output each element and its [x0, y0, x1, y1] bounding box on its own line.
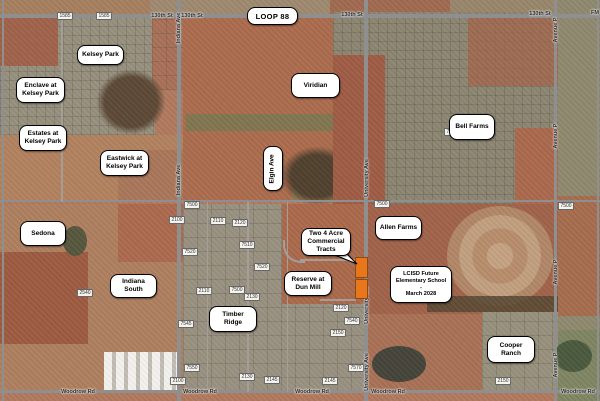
road-shield: 7540: [344, 317, 360, 325]
road-east-edge-road: [597, 0, 599, 401]
road-avenue-p: [554, 0, 557, 401]
road-shield: 2100: [169, 216, 185, 224]
tract-highlight: [355, 279, 368, 299]
road-shield: 7550: [184, 364, 200, 372]
terrain-playa-lake: [95, 68, 167, 136]
aerial-map: 1585158570507500750075002100211021207510…: [0, 0, 600, 401]
road-minor-street-4: [287, 202, 288, 392]
region-label-text: LOOP 88: [256, 12, 290, 21]
road-shield: 7545: [178, 320, 194, 328]
road-label: Avenue P: [553, 353, 559, 378]
road-label: 130th St: [341, 12, 362, 18]
region-label-text: Eastwick at: [107, 155, 142, 163]
road-shield: 7570: [348, 364, 364, 372]
region-label-text: Indiana: [122, 278, 145, 286]
road-130th-st: [0, 14, 600, 18]
region-label-reserve-at-dun-mill: Reserve atDun Mill: [284, 271, 332, 296]
tract-highlight: [355, 257, 368, 278]
region-label-two-4-acre-commercial-tracts: Two 4 AcreCommercialTracts: [301, 228, 351, 256]
region-label-allen-farms: Allen Farms: [375, 216, 422, 240]
terrain-pivot-irrigation-circle: [447, 206, 553, 306]
terrain-warehouse-buildings: [104, 352, 180, 392]
road-university-ave: [364, 0, 368, 401]
road-dunmill-street-north: [300, 259, 356, 261]
terrain-dirt-patch: [0, 18, 58, 66]
region-label-eastwick-at-kelsey-park: Eastwick atKelsey Park: [100, 150, 149, 176]
terrain-dirt-patch: [118, 204, 183, 262]
road-shield: 7520: [182, 248, 198, 256]
road-shield: 7510: [239, 241, 255, 249]
region-label-text: Elementary School: [396, 278, 446, 285]
region-label-text: Reserve at: [292, 276, 325, 284]
road-shield: 7520: [254, 263, 270, 271]
road-label: Avenue P: [553, 260, 559, 285]
region-label-text: Kelsey Park: [22, 90, 59, 98]
region-label-text: Bell Farms: [455, 123, 488, 131]
region-label-text: Commercial: [307, 238, 344, 246]
road-label: Woodrow Rd: [295, 389, 329, 395]
region-label-text: Kelsey Park: [25, 138, 62, 146]
road-shield: 2110: [196, 287, 212, 295]
region-label-bell-farms: Bell Farms: [449, 114, 495, 140]
region-label-text: Cooper: [500, 342, 523, 350]
road-label: Indiana Ave: [176, 13, 182, 43]
road-minor-street-1: [61, 18, 63, 202]
region-label-text: Two 4 Acre: [309, 230, 343, 238]
road-shield: 7500: [229, 286, 245, 294]
region-label-text: Enclave at: [24, 82, 56, 90]
region-label-kelsey-park: Kelsey Park: [77, 45, 124, 65]
road-west-edge-road: [2, 0, 4, 401]
region-label-text: LCISD Future: [403, 271, 439, 278]
region-label-text: -: [420, 285, 422, 292]
road-label: 130th St: [529, 11, 550, 17]
road-label: Avenue P: [553, 18, 559, 43]
road-label: Woodrow Rd: [561, 389, 595, 395]
region-label-text: Dun Mill: [295, 284, 320, 292]
road-label: 130th St: [151, 13, 172, 19]
road-label: FM: [591, 10, 599, 16]
road-shield: 2145: [264, 376, 280, 384]
terrain-dirt-patch: [0, 252, 88, 344]
road-label: Woodrow Rd: [61, 389, 95, 395]
road-dunmill-street-south: [320, 299, 356, 301]
region-label-text: Allen Farms: [380, 224, 417, 232]
road-shield: 1585: [96, 12, 112, 20]
road-shield: 2120: [232, 219, 248, 227]
terrain-pond: [63, 226, 87, 256]
road-shield: 7500: [184, 201, 200, 209]
region-label-text: Viridian: [304, 82, 328, 90]
road-shield: 2150: [330, 329, 346, 337]
region-label-text: South: [124, 286, 142, 294]
region-label-text: March 2028: [406, 291, 436, 298]
road-indiana-ave: [177, 0, 181, 401]
road-shield: 2100: [170, 377, 186, 385]
terrain-pond: [554, 340, 592, 372]
terrain-dirt-patch: [333, 55, 385, 204]
region-label-text: Kelsey Park: [82, 51, 119, 59]
region-label-viridian: Viridian: [291, 73, 340, 98]
region-label-elgin-ave: Elgin Ave: [263, 146, 283, 191]
road-label: University Ave: [364, 353, 370, 391]
region-label-lcisd-future-elementary-school: LCISD FutureElementary School-March 2028: [390, 266, 452, 303]
road-mid-section-road: [0, 200, 600, 202]
road-label: Woodrow Rd: [371, 389, 405, 395]
road-label: Avenue P: [553, 124, 559, 149]
region-label-text: Estates at: [28, 130, 59, 138]
road-shield: 2110: [210, 217, 226, 225]
region-label-text: Sedona: [31, 230, 54, 238]
road-shield: 2145: [322, 377, 338, 385]
terrain-dirt-patch: [558, 196, 600, 316]
region-label-text: Tracts: [316, 246, 335, 254]
road-shield: 7500: [374, 200, 390, 208]
region-label-enclave-at-kelsey-park: Enclave atKelsey Park: [16, 77, 65, 103]
road-label: University Ave: [364, 159, 370, 197]
region-label-text: Ridge: [224, 319, 242, 327]
road-minor-street-3: [207, 202, 208, 392]
road-label: Indiana Ave: [176, 165, 182, 195]
region-label-text: Timber: [222, 311, 244, 319]
road-shield: 2130: [244, 293, 260, 301]
region-label-loop-88: LOOP 88: [247, 7, 298, 25]
region-label-estates-at-kelsey-park: Estates atKelsey Park: [19, 125, 67, 151]
road-shield: 7500: [558, 202, 574, 210]
terrain-dirt-patch: [468, 14, 558, 86]
road-shield: 2150: [495, 377, 511, 385]
road-shield: 1585: [57, 12, 73, 20]
road-shield: 2130: [239, 373, 255, 381]
region-label-cooper-ranch: CooperRanch: [487, 336, 535, 363]
region-label-sedona: Sedona: [20, 221, 66, 246]
road-shield: 2120: [333, 304, 349, 312]
region-label-text: Kelsey Park: [106, 163, 143, 171]
road-shield: 2540: [77, 289, 93, 297]
road-label: Woodrow Rd: [183, 389, 217, 395]
region-label-text: Elgin Ave: [269, 154, 277, 183]
road-label: 130th St: [181, 13, 202, 19]
region-label-timber-ridge: TimberRidge: [209, 306, 257, 332]
region-label-indiana-south: IndianaSouth: [110, 274, 157, 298]
region-label-text: Ranch: [501, 350, 521, 358]
terrain-playa-lake: [372, 346, 426, 382]
